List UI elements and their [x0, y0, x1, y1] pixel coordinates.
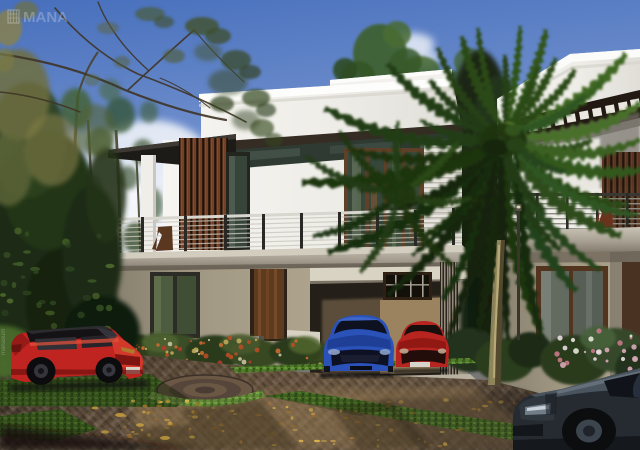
svg-text:MANA: MANA [23, 9, 68, 26]
svg-text:manasum: manasum [1, 329, 7, 355]
